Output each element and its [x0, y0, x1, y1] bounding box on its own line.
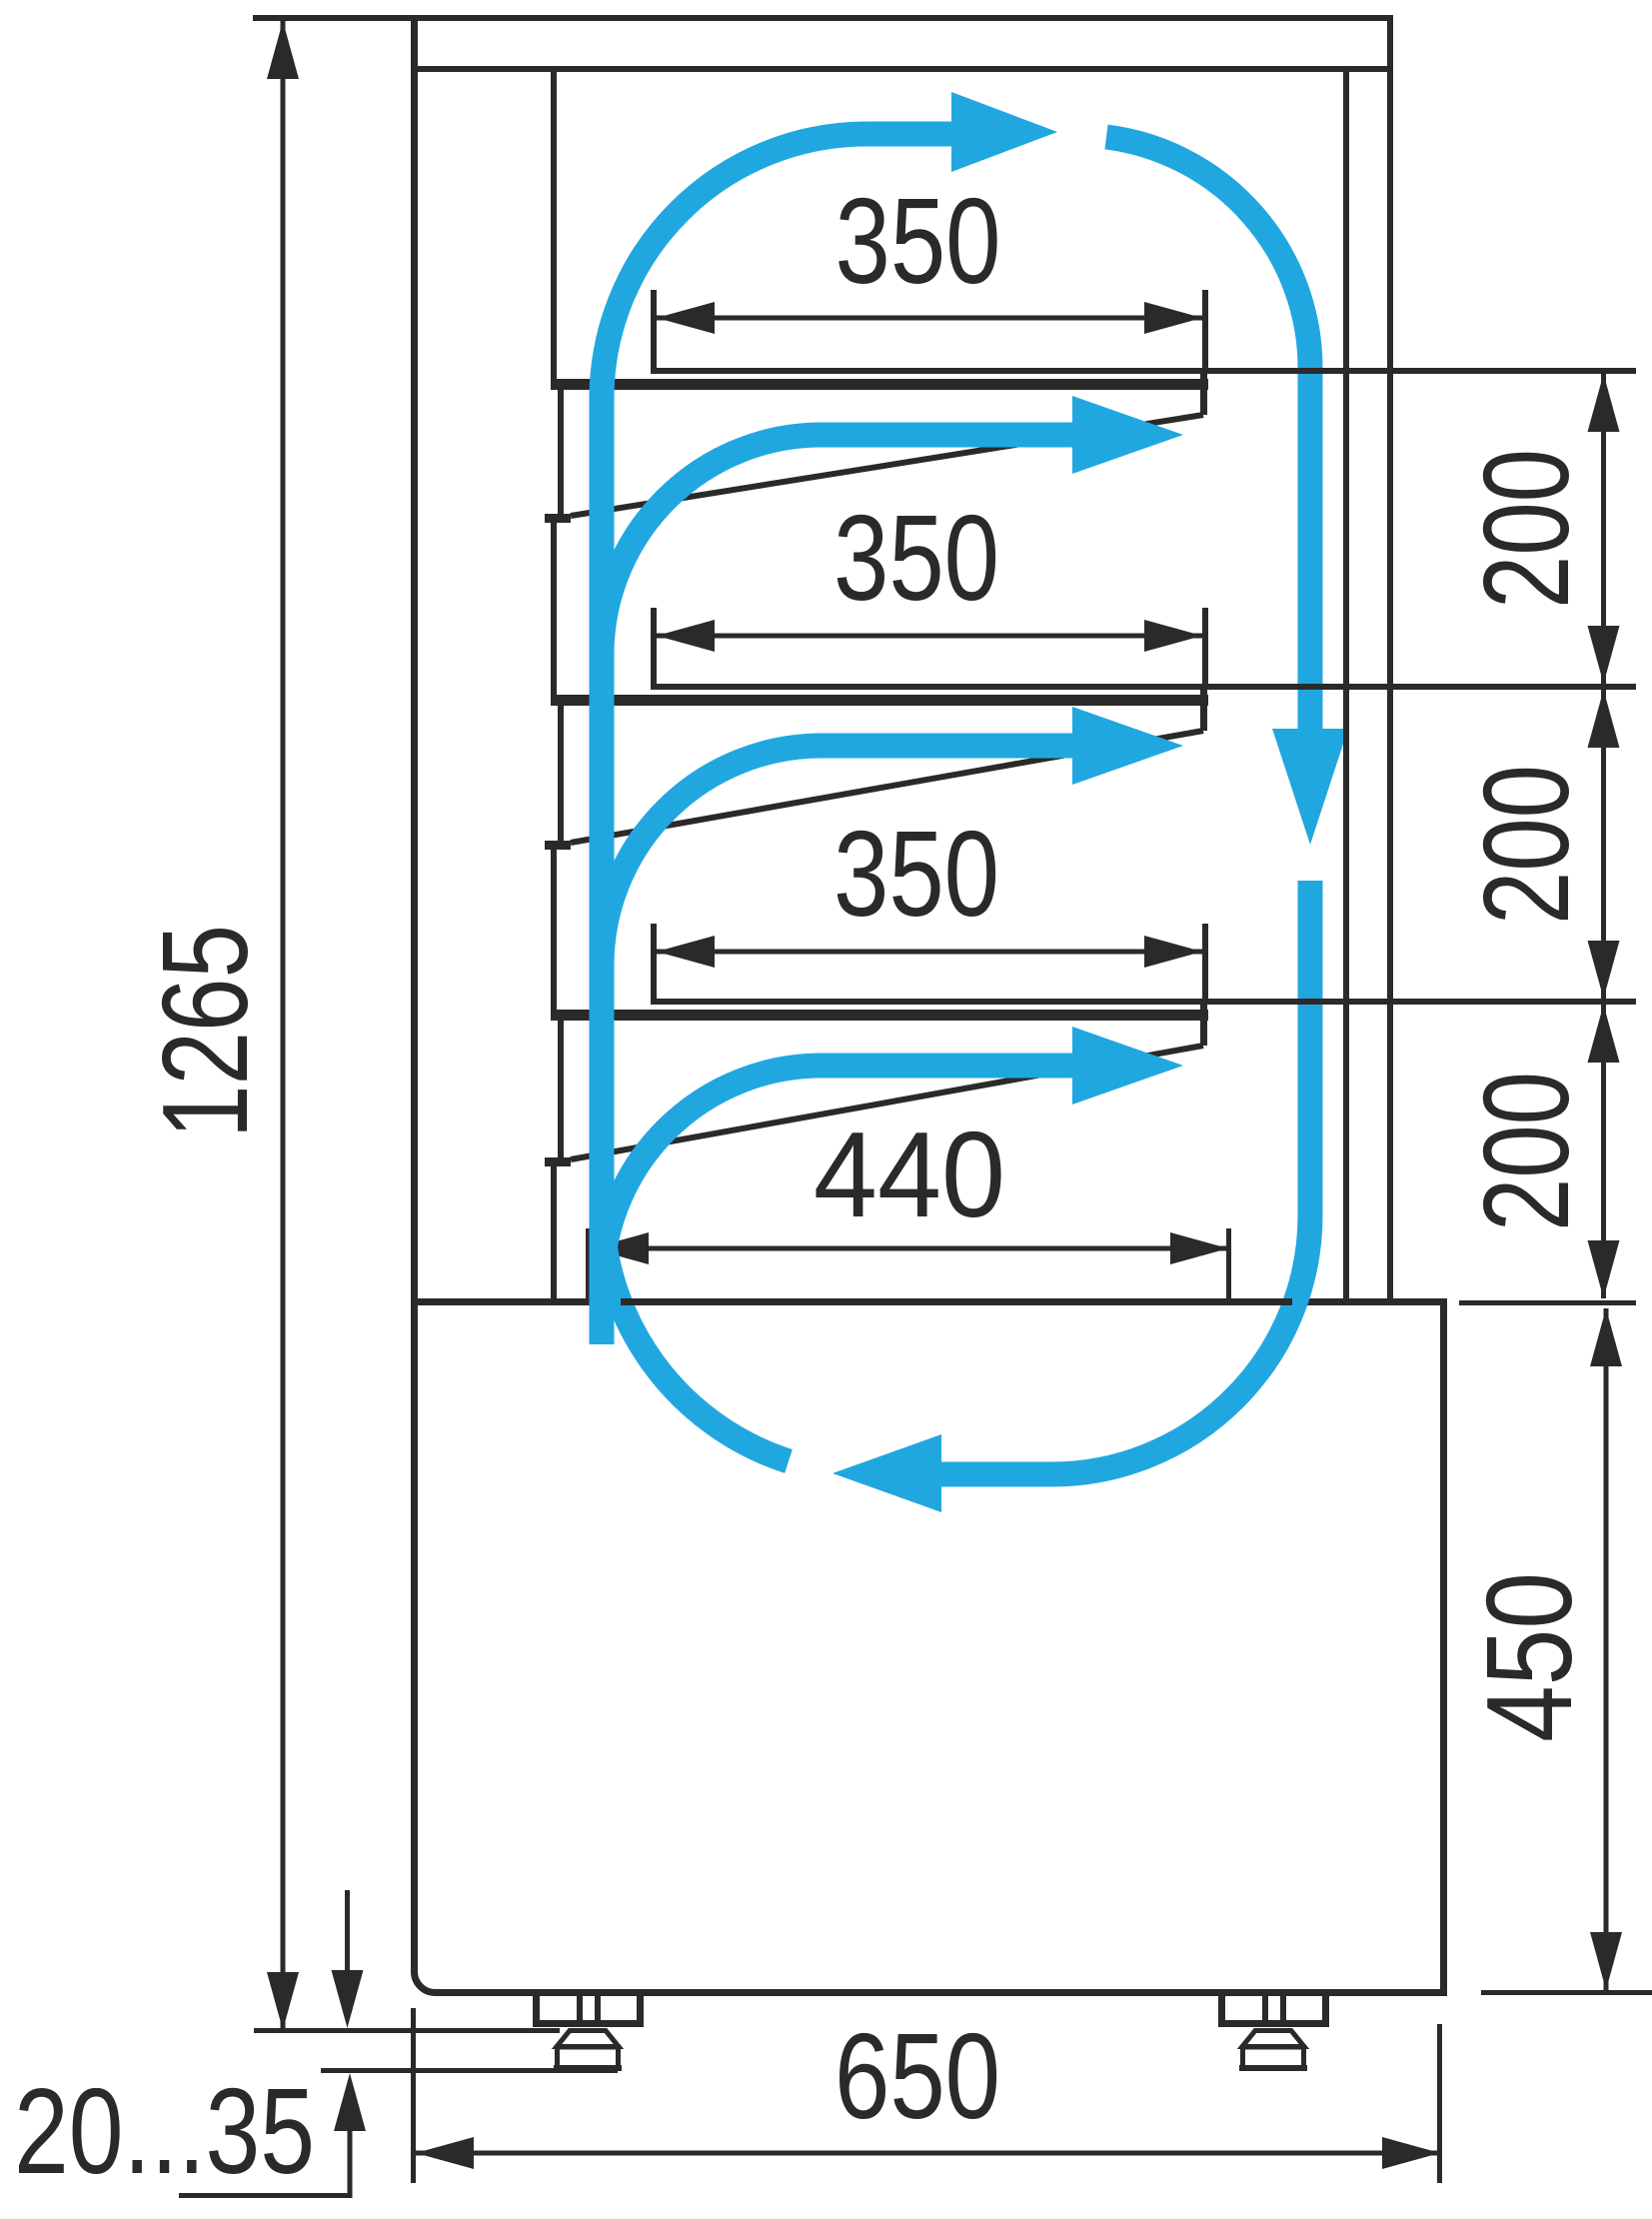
svg-text:350: 350 — [834, 172, 1000, 309]
svg-text:200: 200 — [1459, 1072, 1595, 1231]
svg-text:1265: 1265 — [138, 925, 273, 1138]
svg-text:200: 200 — [1459, 765, 1595, 925]
svg-text:200: 200 — [1459, 449, 1595, 609]
svg-text:350: 350 — [833, 489, 999, 626]
svg-text:650: 650 — [834, 2007, 1000, 2144]
svg-text:20...35: 20...35 — [14, 2064, 315, 2199]
svg-text:350: 350 — [833, 805, 999, 942]
svg-text:450: 450 — [1460, 1572, 1597, 1742]
svg-text:440: 440 — [814, 1108, 1005, 1243]
